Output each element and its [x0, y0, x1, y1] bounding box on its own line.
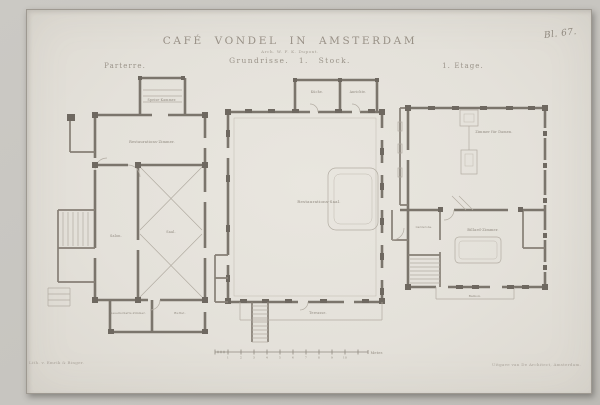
- room-label-damen: Zimmer für Damen.: [475, 130, 512, 134]
- saalbau-walls: [228, 112, 382, 302]
- scale-tick-2: 2: [240, 356, 242, 360]
- scale-tick-8: 8: [318, 356, 320, 360]
- parterre-porch: [67, 114, 95, 152]
- room-label-garderobe: Garderobe.: [416, 225, 433, 229]
- parterre-plan: Speise-Kammer. Restaurations-Zimmer. Sal…: [48, 76, 208, 334]
- room-label-restauration: Restaurations-Zimmer.: [129, 140, 175, 144]
- imprint-left: Lith. v. Emrik & Binger.: [29, 360, 84, 365]
- scale-tick-7: 7: [305, 356, 307, 360]
- scale-tick-3: 3: [253, 356, 255, 360]
- imprint-right: Uitgave van De Architect, Amsterdam.: [492, 362, 581, 367]
- room-label-balkon: Balkon.: [469, 294, 482, 298]
- saalbau-plan: Küche. Anrichte. Restaurations-Saal. Ter…: [215, 78, 385, 342]
- room-label-billard: Billard-Zimmer.: [467, 228, 499, 232]
- etage-walls: [392, 108, 545, 287]
- plate-title: CAFÉ VONDEL IN AMSTERDAM: [0, 35, 580, 47]
- saalbau-door-arcs: [300, 104, 360, 310]
- room-label-kueche: Küche.: [311, 90, 323, 94]
- billiard-table: [455, 237, 501, 263]
- etage-stairs: [408, 255, 440, 283]
- room-label-speisekammer: Speise-Kammer.: [148, 98, 177, 102]
- room-label-restaurations-saal: Restaurations-Saal.: [297, 199, 340, 204]
- parterre-door-arcs: [95, 158, 160, 310]
- room-label-terrasse: Terrasse.: [309, 311, 327, 315]
- plan-label-parterre: Parterre.: [90, 62, 160, 70]
- room-label-buffet: Buffet.: [174, 311, 186, 315]
- scanned-plate: Speise-Kammer. Restaurations-Zimmer. Sal…: [0, 0, 600, 405]
- scale-tick-4: 4: [266, 356, 268, 360]
- saalbau-inner-gallery: [234, 118, 378, 296]
- parterre-walls: [95, 78, 205, 332]
- saalbau-pilasters: [225, 109, 385, 304]
- room-label-salon: Salon.: [110, 234, 122, 238]
- etage-chimney: [452, 110, 478, 210]
- scale-tick-1: 1: [227, 356, 229, 360]
- scale-tick-5: 5: [279, 356, 281, 360]
- parterre-stairs: [48, 210, 95, 306]
- scale-tick-6: 6: [292, 356, 294, 360]
- scale-unit-label: Meter.: [371, 351, 384, 355]
- saalbau-top-rooms: [293, 78, 379, 112]
- etage-door-arcs: [392, 210, 454, 240]
- plan-label-etage: 1. Etage.: [428, 62, 498, 70]
- scale-tick-10: 10: [343, 356, 347, 360]
- room-label-gesellschaft: Gesellschafts-Zimmer.: [110, 311, 146, 315]
- room-label-anrichte: Anrichte.: [349, 90, 367, 94]
- room-label-saal: Saal.: [166, 230, 176, 234]
- scale-bar: 1 2 3 4 5 6 7 8 9 10 Meter.: [215, 350, 383, 360]
- scale-tick-9: 9: [331, 356, 333, 360]
- saalbau-stairs: [252, 302, 268, 342]
- architect-line: Arch. W. F. K. Dupont.: [0, 49, 580, 54]
- saalbau-left-annex: [215, 255, 228, 302]
- etage-plan: Zimmer für Damen. Garderobe. Billard-Zim…: [392, 105, 548, 299]
